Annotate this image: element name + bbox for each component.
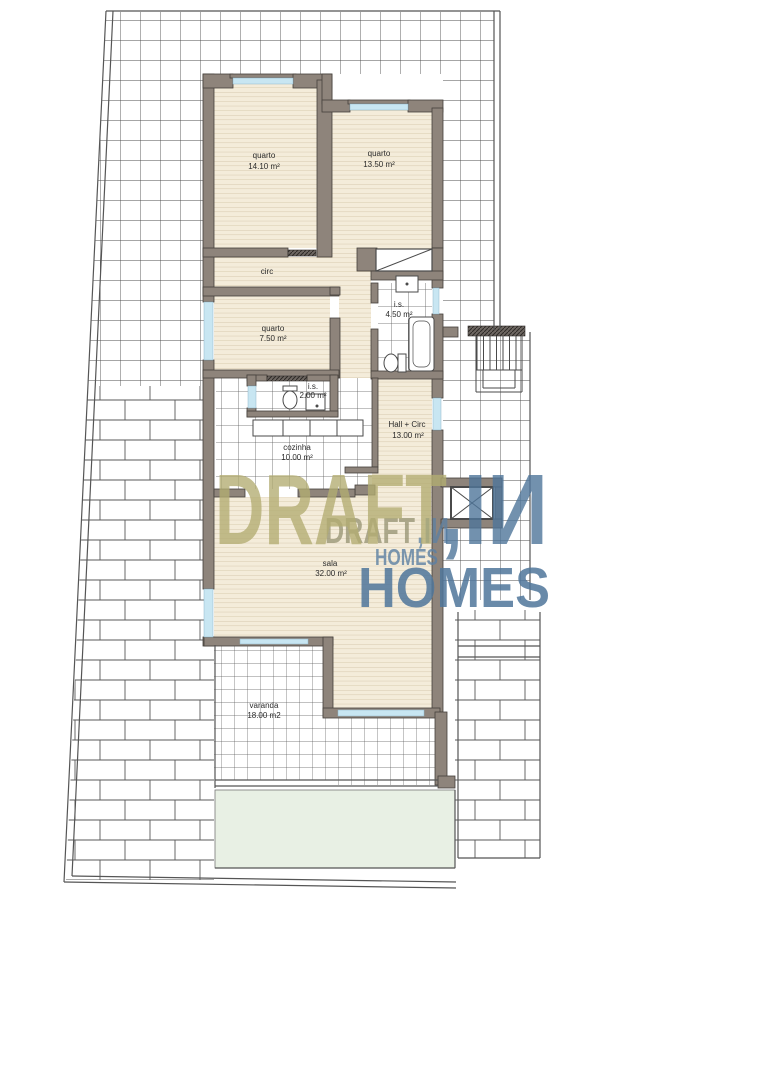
- area-quarto-2: 13.50 m²: [363, 160, 395, 169]
- label-quarto-2: quarto: [368, 149, 391, 158]
- lawn-area: [215, 790, 455, 868]
- floor-quarto-2: [326, 108, 432, 271]
- door-bar-is-2: [267, 376, 307, 381]
- sink-is-1: [396, 276, 418, 292]
- stair-top-beam: [468, 326, 525, 336]
- wardrobe-quarto-2: [376, 249, 432, 271]
- area-sala: 32.00 m²: [315, 569, 347, 578]
- toilet-is-2: [283, 386, 297, 409]
- area-quarto-1: 14.10 m²: [248, 162, 280, 171]
- brick-paving-right: [455, 610, 540, 858]
- label-is-2: i.s.: [308, 382, 318, 391]
- label-hall: Hall + Circ: [388, 420, 425, 429]
- window-quarto-1: [233, 78, 293, 84]
- window-quarto-2: [350, 104, 408, 110]
- window-quarto-3: [204, 302, 213, 360]
- area-is-1: 4.50 m²: [385, 310, 412, 319]
- entry-door-opening: [433, 398, 441, 430]
- area-quarto-3: 7.50 m²: [259, 334, 286, 343]
- floor-sala-extension: [333, 637, 432, 708]
- area-is-2: 2.00 m²: [299, 391, 326, 400]
- window-sala-extension: [338, 710, 424, 716]
- kitchen-counter: [253, 420, 363, 436]
- area-varanda: 18.00 m2: [247, 711, 281, 720]
- floor-circ: [214, 257, 371, 287]
- watermark-large-draft: DRAFT: [215, 454, 447, 566]
- toilet-is-1: [384, 354, 406, 372]
- window-sala-left: [204, 589, 213, 637]
- window-is-1: [433, 288, 439, 314]
- watermark-large-in: ,IИ: [440, 454, 548, 566]
- floor-quarto-3: [214, 296, 330, 370]
- floor-plan-drawing: quarto 14.10 m² quarto 13.50 m² circ qua…: [0, 0, 763, 1080]
- door-bar-circ: [288, 250, 316, 256]
- label-quarto-3: quarto: [262, 324, 285, 333]
- brick-paving-left: [66, 386, 214, 880]
- label-varanda: varanda: [250, 701, 279, 710]
- boundary-right-top: [494, 11, 500, 330]
- label-quarto-1: quarto: [253, 151, 276, 160]
- floor-circ-strip: [339, 283, 371, 378]
- floor-varanda-bottom: [330, 717, 435, 785]
- label-cozinha: cozinha: [283, 443, 311, 452]
- window-sala-varanda: [240, 639, 308, 644]
- area-hall: 13.00 m²: [392, 431, 424, 440]
- label-is-1: i.s.: [394, 300, 404, 309]
- label-circ: circ: [261, 267, 273, 276]
- watermark-large-homes: HOMES: [358, 556, 550, 620]
- window-is-2: [248, 386, 256, 408]
- floor-plan-page: quarto 14.10 m² quarto 13.50 m² circ qua…: [0, 0, 763, 1080]
